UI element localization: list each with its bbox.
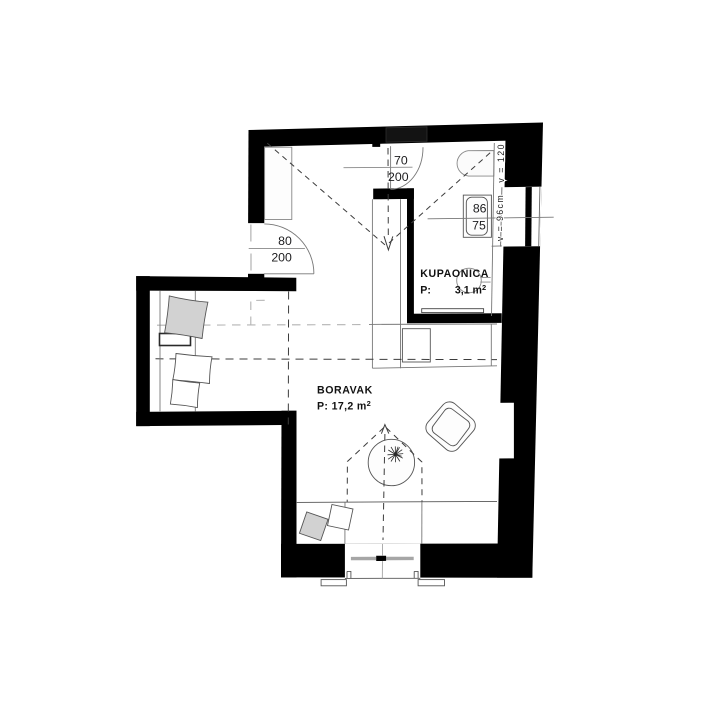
svg-text:70: 70 <box>394 153 408 167</box>
svg-text:75: 75 <box>472 218 486 232</box>
svg-text:80: 80 <box>278 234 292 248</box>
svg-text:3,1 m2: 3,1 m2 <box>455 283 486 297</box>
svg-text:BORAVAK: BORAVAK <box>317 385 373 397</box>
svg-text:KUPAONICA: KUPAONICA <box>420 268 489 280</box>
svg-text:P: 17,2 m2: P: 17,2 m2 <box>317 399 371 413</box>
svg-text:P:: P: <box>420 284 431 296</box>
svg-text:86: 86 <box>473 202 487 216</box>
svg-text:v = 96cm: v = 96cm <box>495 194 505 241</box>
svg-text:200: 200 <box>388 170 409 184</box>
svg-text:v = 120: v = 120 <box>496 143 506 183</box>
svg-text:200: 200 <box>271 250 292 264</box>
